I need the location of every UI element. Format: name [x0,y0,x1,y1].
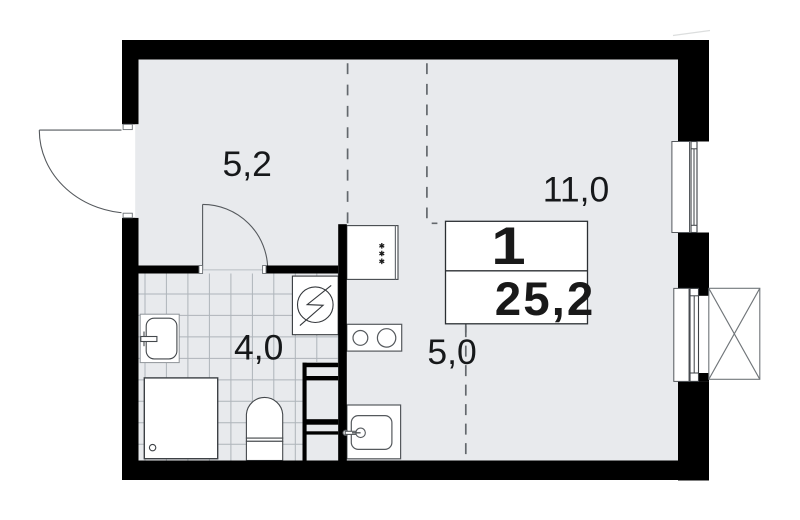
svg-text:1: 1 [491,217,525,276]
svg-text:11,0: 11,0 [543,170,609,210]
svg-text:5,0: 5,0 [427,332,476,372]
svg-text:4,0: 4,0 [234,328,283,368]
svg-text:5,2: 5,2 [223,144,272,184]
svg-text:25,2: 25,2 [495,273,595,326]
